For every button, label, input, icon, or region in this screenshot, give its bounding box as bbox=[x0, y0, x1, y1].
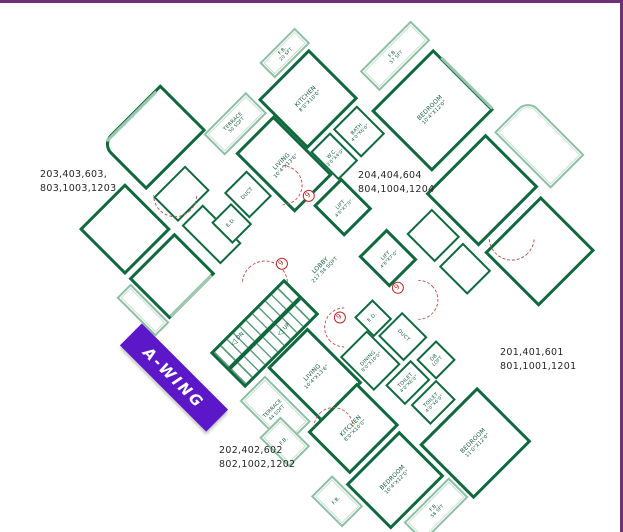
room-label: E.D. bbox=[226, 218, 238, 230]
room-label: F.B. bbox=[332, 496, 343, 507]
floor-plan-page: TERRACE50 SQFT F.B.20 SFT KITCHEN8'0"X10… bbox=[0, 0, 623, 532]
lobby-label: LOBBY217.54 SQFT bbox=[296, 241, 350, 295]
unit-label-202: 202,402,602802,1002,1202 bbox=[219, 444, 295, 471]
unit-label-201: 201,401,601801,1001,1201 bbox=[500, 346, 576, 373]
unit-label-203: 203,403,603,803,1003,1203 bbox=[40, 168, 116, 195]
room-label: DUCT bbox=[241, 187, 255, 201]
room-label: DUCT bbox=[396, 329, 410, 343]
floor-plan-canvas: TERRACE50 SQFT F.B.20 SFT KITCHEN8'0"X10… bbox=[0, 0, 623, 532]
room-201-k bbox=[439, 243, 491, 295]
room-label: E.D. bbox=[367, 312, 379, 324]
unit-label-204: 204,404,604804,1004,1204 bbox=[358, 169, 434, 196]
